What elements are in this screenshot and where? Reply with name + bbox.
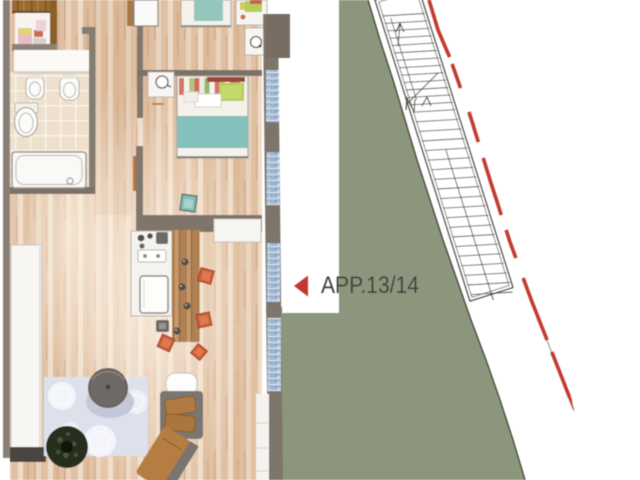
svg-text:APP.13/14: APP.13/14 xyxy=(321,272,419,299)
